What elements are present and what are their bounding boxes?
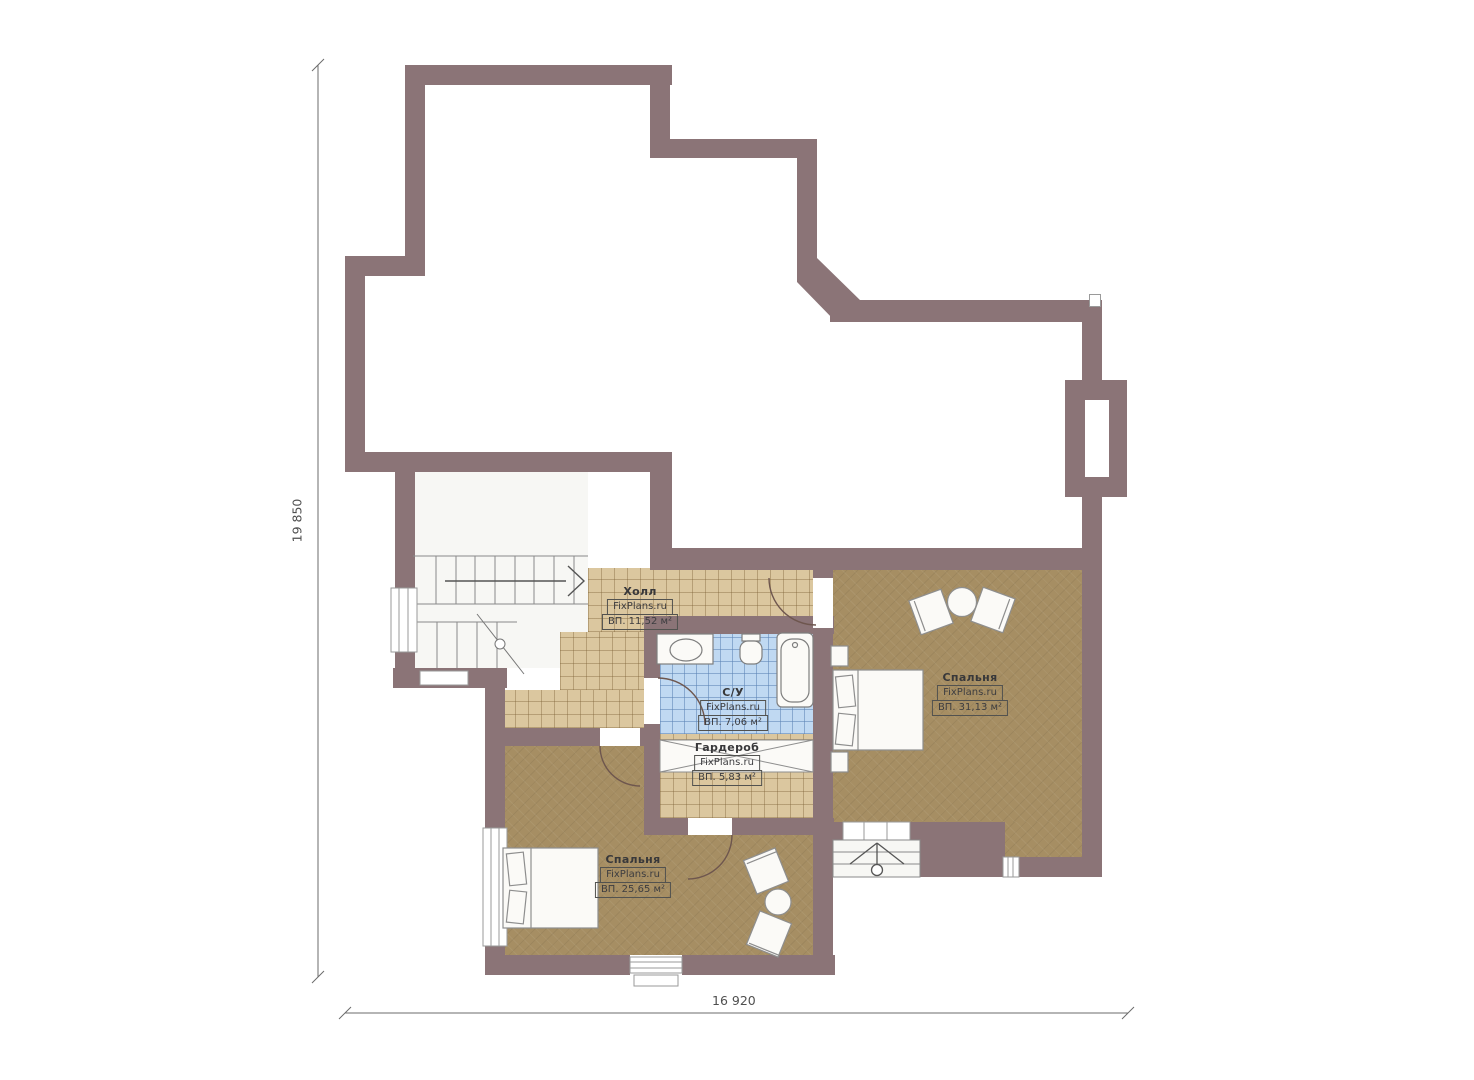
- door-arc-corridor-bedroom: [600, 746, 640, 786]
- sink: [657, 634, 713, 664]
- room-label-bathroom: С/У FixPlans.ru ВП. 7,06 м²: [698, 686, 768, 731]
- toilet: [740, 634, 762, 664]
- window-bedroom-bottom-south: [630, 957, 682, 986]
- plan-linework: [0, 0, 1474, 1080]
- armchair: [743, 848, 788, 894]
- dimension-left: 19 850: [289, 499, 304, 543]
- room-area: ВП. 7,06 м²: [698, 715, 768, 731]
- door-opening-corridor-bedroom: [600, 728, 640, 746]
- room-area: ВП. 11,52 м²: [602, 614, 678, 630]
- door-opening-steps: [843, 822, 910, 840]
- room-watermark: FixPlans.ru: [600, 867, 666, 883]
- room-label-bedroom-right: Спальня FixPlans.ru ВП. 31,13 м²: [932, 671, 1008, 716]
- room-name: Гардероб: [695, 741, 759, 754]
- bed-right: [831, 646, 923, 772]
- room-label-wardrobe: Гардероб FixPlans.ru ВП. 5,83 м²: [692, 741, 762, 786]
- room-name: С/У: [722, 686, 743, 699]
- room-area: ВП. 25,65 м²: [595, 882, 671, 898]
- room-name: Спальня: [606, 853, 661, 866]
- bed-bottom: [503, 848, 598, 928]
- door-opening-hall-bedroom: [813, 578, 833, 628]
- round-table: [765, 889, 791, 915]
- armchair: [971, 587, 1015, 632]
- window-extension: [1003, 857, 1019, 877]
- armchair: [909, 589, 953, 634]
- door-arc-hall-bedroom: [769, 578, 816, 625]
- wall-diagonal: [797, 258, 862, 322]
- bathtub: [777, 633, 813, 707]
- door-opening-bathroom: [644, 678, 660, 724]
- room-name: Холл: [623, 585, 656, 598]
- room-name: Спальня: [943, 671, 998, 684]
- window-stair-bottom: [420, 671, 468, 685]
- room-watermark: FixPlans.ru: [937, 685, 1003, 701]
- room-label-bedroom-bottom: Спальня FixPlans.ru ВП. 25,65 м²: [595, 853, 671, 898]
- window-stair-left: [391, 588, 417, 652]
- door-opening-wardrobe: [688, 818, 732, 835]
- floor-plan-canvas: Холл FixPlans.ru ВП. 11,52 м² С/У FixPla…: [0, 0, 1474, 1080]
- room-area: ВП. 31,13 м²: [932, 700, 1008, 716]
- dimension-bottom: 16 920: [712, 993, 756, 1008]
- room-area: ВП. 5,83 м²: [692, 770, 762, 786]
- room-watermark: FixPlans.ru: [700, 700, 766, 716]
- room-watermark: FixPlans.ru: [694, 755, 760, 771]
- room-label-hall: Холл FixPlans.ru ВП. 11,52 м²: [602, 585, 678, 630]
- room-watermark: FixPlans.ru: [607, 599, 673, 615]
- round-table: [948, 588, 977, 617]
- armchair: [746, 911, 791, 957]
- door-arc-wardrobe: [688, 835, 732, 879]
- staircase: [413, 556, 588, 674]
